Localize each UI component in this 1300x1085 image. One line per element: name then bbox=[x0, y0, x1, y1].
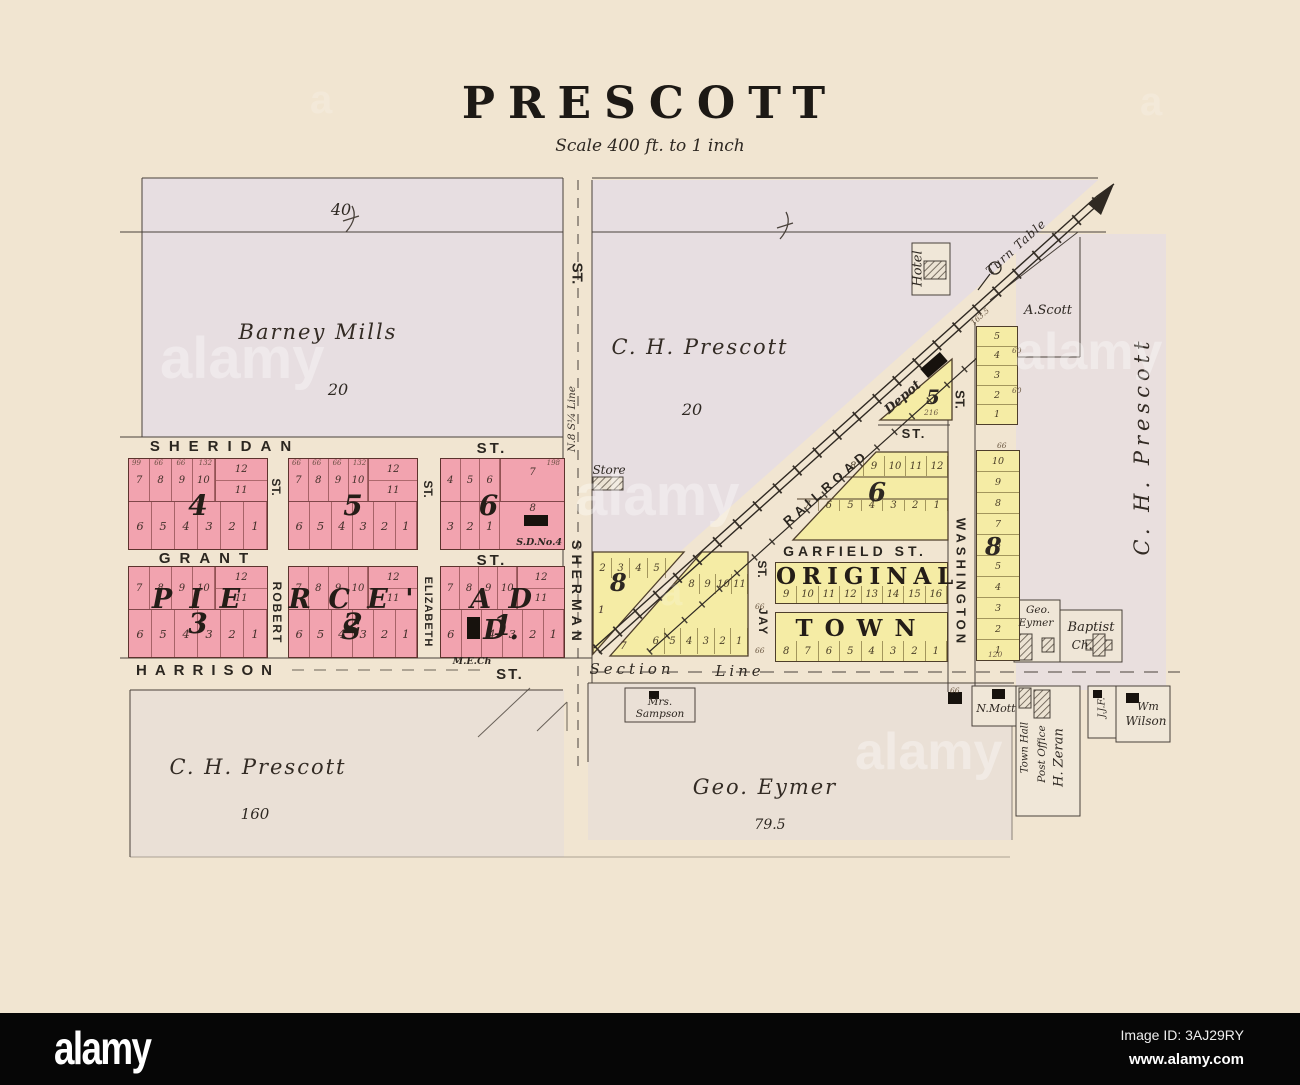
lot-number: 5 bbox=[977, 327, 1017, 347]
lot-number: 7 bbox=[797, 641, 818, 661]
block-7y-top-lots: 891011 bbox=[684, 574, 748, 594]
lot-number: 132 bbox=[199, 459, 212, 467]
jjf-label: J.J.F. bbox=[1097, 688, 1108, 728]
addition-name-part-1: P I E bbox=[140, 584, 256, 615]
dim-216: 216 bbox=[924, 408, 938, 417]
alamy-url: www.alamy.com bbox=[1129, 1051, 1244, 1068]
street-railroad-st: ST. bbox=[902, 426, 927, 441]
street-garfield: GARFIELD ST. bbox=[783, 543, 927, 559]
street-robert-st: ST. bbox=[269, 474, 283, 500]
street-sheridan-st: ST. bbox=[477, 440, 508, 457]
lot-number: 1 bbox=[598, 604, 605, 616]
lot-number: 1 bbox=[731, 628, 748, 654]
lot-number: 132 bbox=[353, 459, 366, 467]
lot-number: 9 bbox=[700, 574, 716, 594]
lot-number: 12 bbox=[927, 456, 948, 476]
street-harrison: HARRISON bbox=[136, 662, 280, 679]
plat-map-page: PRESCOTT Scale 400 ft. to 1 inch Barney … bbox=[0, 0, 1300, 1085]
post-office-label: Post Office bbox=[1036, 713, 1048, 795]
parcel-owner-prescott-sw: C. H. Prescott bbox=[170, 755, 347, 779]
street-grant-st: ST. bbox=[477, 552, 508, 569]
dim-66: 66 bbox=[997, 441, 1007, 450]
street-washington: WASHINGTON bbox=[954, 498, 969, 668]
dim-66: 66 bbox=[755, 602, 765, 611]
lot-number: 3 bbox=[977, 366, 1017, 386]
lot-number: 8 bbox=[684, 574, 700, 594]
street-elizabeth-st: ST. bbox=[421, 476, 435, 502]
acreage-40: 40 bbox=[331, 200, 351, 219]
block-5-dims: 666666132 bbox=[292, 459, 366, 467]
street-washington-st: ST. bbox=[953, 385, 968, 415]
lot-number: 2 bbox=[904, 641, 925, 661]
parcel-owner-prescott-east: C. H. Prescott bbox=[1130, 326, 1154, 566]
original-town-word-2: TOWN bbox=[776, 615, 947, 642]
lot-number: 4 bbox=[681, 628, 698, 654]
lot-number: 66 bbox=[292, 459, 301, 467]
lot-number: 4 bbox=[977, 577, 1019, 598]
lot-number: 99 bbox=[132, 459, 141, 467]
acreage-79-5: 79.5 bbox=[754, 817, 785, 833]
baptist-label-1: Baptist bbox=[1068, 620, 1115, 635]
block-4-dims: 996666132 bbox=[132, 459, 212, 467]
block-number-5: 5 bbox=[289, 489, 417, 522]
town-hall-label: Town Hall bbox=[1020, 713, 1031, 783]
zeran-label: H. Zeran bbox=[1052, 713, 1067, 803]
school-building bbox=[524, 515, 548, 526]
hotel-label: Hotel bbox=[911, 244, 926, 294]
parcel-owner-barney-mills: Barney Mills bbox=[239, 320, 398, 344]
original-town-south-lots: 87654321 bbox=[776, 641, 947, 661]
me-church-label: M.E.Ch bbox=[453, 656, 492, 667]
lot-number: 6 bbox=[819, 500, 841, 511]
dim-60: 60 bbox=[1012, 386, 1022, 395]
acreage-20-barney: 20 bbox=[328, 380, 348, 399]
lot-number: 10 bbox=[885, 456, 906, 476]
lot-number: 1 bbox=[977, 405, 1017, 424]
lot-number: 66 bbox=[312, 459, 321, 467]
lot-number: 2 bbox=[977, 619, 1019, 640]
lot-number: 6 bbox=[648, 628, 665, 654]
block-6-pink: 456 7 198 321 8 S.D.No.4 6 bbox=[440, 458, 565, 550]
acreage-20-prescott: 20 bbox=[682, 400, 702, 419]
addition-name-part-2: R C E ' S bbox=[288, 584, 418, 646]
sampson-label-1: Mrs. bbox=[648, 696, 673, 708]
wilson-label-2: Wilson bbox=[1126, 714, 1167, 728]
original-town-south-block: TOWN 87654321 bbox=[775, 612, 948, 662]
lot-number: 66 bbox=[333, 459, 342, 467]
block-number-4: 4 bbox=[129, 489, 267, 522]
parcel-owner-a-scott: A.Scott bbox=[1024, 303, 1072, 318]
map-scale: Scale 400 ft. to 1 inch bbox=[555, 136, 745, 156]
lot-number: 11 bbox=[732, 574, 748, 594]
section-line-label-1: Section bbox=[589, 660, 674, 678]
lot-number: 3 bbox=[883, 641, 904, 661]
lot-number: 10 bbox=[977, 451, 1019, 472]
block-number-8-west: 8 bbox=[610, 568, 627, 597]
lot-number: 9 bbox=[977, 472, 1019, 493]
section-line-label-2: Line bbox=[715, 662, 764, 680]
eymer-small-label-1: Geo. bbox=[1026, 604, 1050, 616]
block-5: 78910 12 11 654321 5 666666132 bbox=[288, 458, 418, 550]
acreage-160: 160 bbox=[241, 805, 270, 823]
block-8w-top-lots: 2345 bbox=[594, 558, 666, 578]
dim-66: 66 bbox=[755, 646, 765, 655]
wilson-label-1: Wm bbox=[1137, 700, 1159, 713]
addition-name-part-3: A D D. bbox=[444, 584, 562, 646]
lot-number: 5 bbox=[840, 641, 861, 661]
eymer-small-label-2: Eymer bbox=[1019, 617, 1054, 629]
lot-number: 2 bbox=[715, 628, 732, 654]
lot-number: 12 bbox=[216, 459, 267, 481]
lot-number: 5 bbox=[840, 500, 862, 511]
dim-66: 66 bbox=[950, 686, 960, 695]
dim-60: 60 bbox=[1012, 346, 1022, 355]
original-town-north-block: ORIGINAL 910111213141516 bbox=[775, 562, 948, 604]
dim-198: 198 bbox=[547, 459, 560, 467]
lot-number: 66 bbox=[154, 459, 163, 467]
street-elizabeth: ELIZABETH bbox=[422, 567, 434, 657]
mott-label: N.Mott bbox=[976, 702, 1015, 715]
quarter-section-line-label: N.8 S¼ Line bbox=[566, 359, 578, 479]
street-jay-st: ST. bbox=[755, 554, 769, 584]
block-7y-bottom-lots: 654321 bbox=[648, 628, 748, 654]
block-4: 78910 12 11 654321 4 996666132 bbox=[128, 458, 268, 550]
school-label: S.D.No.4 bbox=[516, 537, 562, 548]
page-title: PRESCOTT bbox=[462, 78, 838, 129]
watermark-footer-bar: alamy Image ID: 3AJ29RY www.alamy.com bbox=[0, 1013, 1300, 1085]
lot-number: 2 bbox=[905, 500, 927, 511]
lot-number: 6 bbox=[819, 641, 840, 661]
lot-number: 8 bbox=[776, 641, 797, 661]
lot-number: 4 bbox=[630, 558, 648, 578]
street-sherman: SHERMAN bbox=[569, 533, 585, 653]
lot-number: 4 bbox=[977, 347, 1017, 367]
parcel-owner-prescott-mid: C. H. Prescott bbox=[612, 335, 789, 359]
street-sherman-st: ST. bbox=[569, 259, 586, 289]
lot-number: 8 bbox=[977, 493, 1019, 514]
block-number-5-depot: 5 bbox=[926, 385, 940, 409]
street-sheridan: SHERIDAN bbox=[150, 438, 300, 455]
lot-number: 3 bbox=[977, 598, 1019, 619]
lot-number: 11 bbox=[906, 456, 927, 476]
lot-number: 5 bbox=[648, 558, 666, 578]
lot-number: 3 bbox=[883, 500, 905, 511]
lot-number: 1 bbox=[926, 500, 948, 511]
street-robert: ROBERT bbox=[270, 573, 284, 653]
lot-number: 66 bbox=[176, 459, 185, 467]
east-lot-column-a: 54321 bbox=[976, 326, 1018, 425]
lot-number: 5 bbox=[665, 628, 682, 654]
image-id: Image ID: 3AJ29RY bbox=[1121, 1027, 1244, 1043]
lot-number: 4 bbox=[862, 641, 883, 661]
sampson-label-2: Sampson bbox=[636, 708, 685, 720]
alamy-logo: alamy bbox=[54, 1021, 150, 1075]
street-harrison-st: ST. bbox=[496, 666, 524, 683]
lot-number: 7 bbox=[620, 640, 627, 652]
store-label: Store bbox=[592, 463, 625, 477]
street-grant: GRANT bbox=[159, 550, 257, 567]
lot-number: 3 bbox=[698, 628, 715, 654]
parcel-owner-eymer: Geo. Eymer bbox=[693, 775, 837, 799]
lot-number: 10 bbox=[716, 574, 732, 594]
lot-number: 7 bbox=[529, 467, 535, 478]
block-number-6-yellow: 6 bbox=[868, 478, 886, 508]
dim-120: 120 bbox=[988, 650, 1002, 659]
original-town-word-1: ORIGINAL bbox=[776, 563, 947, 590]
lot-number: 12 bbox=[369, 459, 417, 481]
lot-number: 2 bbox=[977, 386, 1017, 406]
block-number-8-east: 8 bbox=[985, 532, 1002, 561]
lot-number: 1 bbox=[926, 641, 947, 661]
baptist-label-2: Ch. bbox=[1072, 638, 1093, 652]
